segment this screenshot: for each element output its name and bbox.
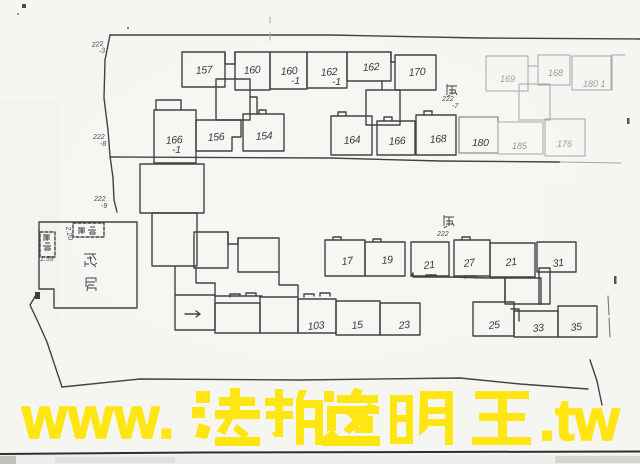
svg-text:21: 21 xyxy=(504,256,517,269)
svg-text:-1: -1 xyxy=(332,76,341,88)
svg-text:-1: -1 xyxy=(291,75,300,87)
svg-text:157: 157 xyxy=(195,64,214,77)
svg-text:166: 166 xyxy=(388,135,406,148)
svg-text:180 1: 180 1 xyxy=(583,79,606,89)
svg-text:222: 222 xyxy=(93,196,106,203)
svg-text:21: 21 xyxy=(422,259,435,272)
svg-text:-1: -1 xyxy=(172,144,181,156)
svg-text:15: 15 xyxy=(351,319,364,332)
svg-text:31: 31 xyxy=(552,257,564,270)
svg-text:169: 169 xyxy=(500,74,515,84)
svg-text:-3: -3 xyxy=(98,47,105,55)
svg-text:-8: -8 xyxy=(100,141,106,148)
svg-text:222: 222 xyxy=(92,134,105,141)
svg-text:222: 222 xyxy=(441,96,454,103)
svg-text:170: 170 xyxy=(408,66,426,79)
svg-text:154: 154 xyxy=(255,130,273,143)
svg-text:164: 164 xyxy=(343,134,361,147)
svg-text:35: 35 xyxy=(570,321,583,334)
svg-text:160: 160 xyxy=(243,64,261,77)
svg-text:33: 33 xyxy=(532,322,545,335)
svg-text:www.: www. xyxy=(21,386,175,451)
svg-text:168: 168 xyxy=(429,133,447,146)
svg-text:23: 23 xyxy=(397,319,411,332)
svg-text:1.59: 1.59 xyxy=(40,256,54,263)
svg-text:.tw: .tw xyxy=(539,388,620,453)
svg-text:222: 222 xyxy=(436,231,449,238)
svg-text:156: 156 xyxy=(207,131,225,144)
svg-text:-9: -9 xyxy=(101,203,107,210)
svg-text:103: 103 xyxy=(307,319,325,333)
svg-text:176: 176 xyxy=(557,139,572,149)
svg-text:-7: -7 xyxy=(452,103,459,110)
svg-text:185: 185 xyxy=(512,141,528,151)
svg-text:180: 180 xyxy=(472,137,489,149)
svg-text:19: 19 xyxy=(381,254,394,267)
svg-text:25: 25 xyxy=(487,319,501,332)
svg-text:162: 162 xyxy=(362,61,380,74)
svg-text:168: 168 xyxy=(548,68,563,78)
